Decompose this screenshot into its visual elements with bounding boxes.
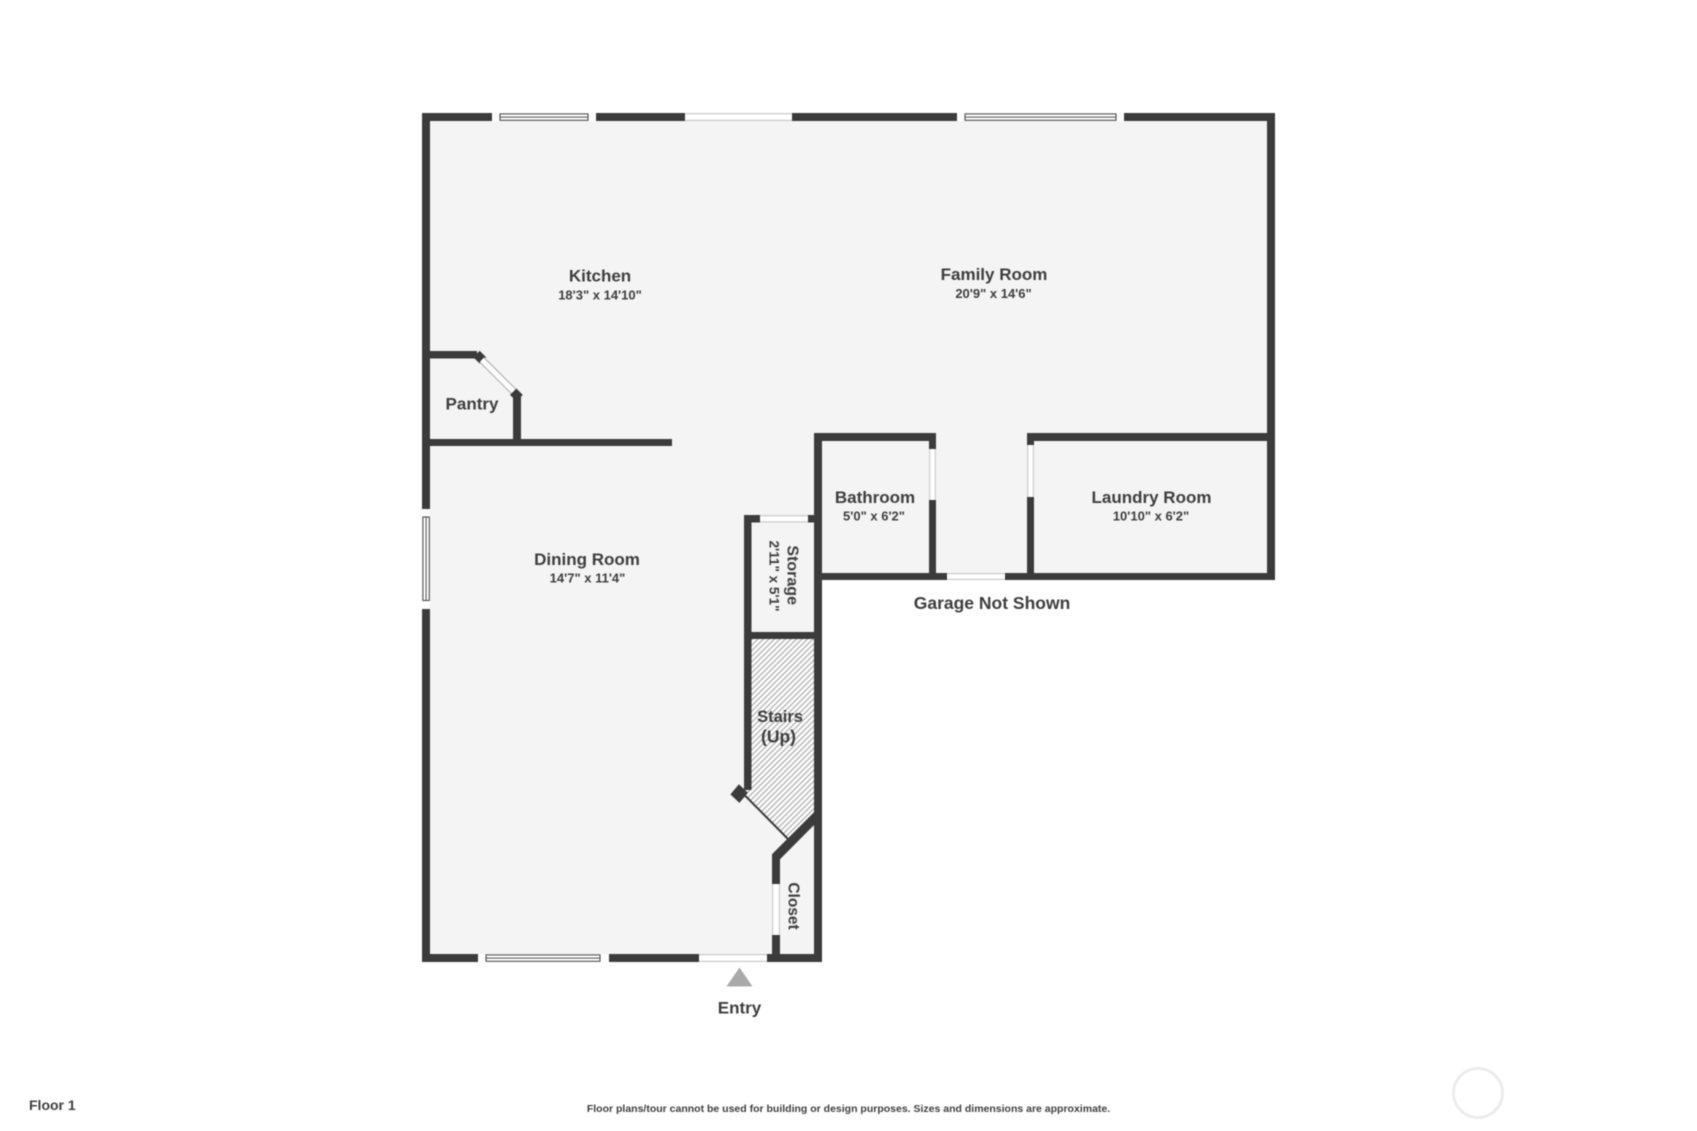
svg-text:18'3" x 14'10": 18'3" x 14'10" (558, 288, 642, 303)
svg-text:Closet: Closet (785, 882, 802, 929)
svg-text:Garage Not Shown: Garage Not Shown (914, 593, 1071, 613)
svg-text:Floor plans/tour cannot be use: Floor plans/tour cannot be used for buil… (587, 1103, 1110, 1115)
svg-text:Bathroom: Bathroom (835, 488, 915, 507)
svg-text:(Up): (Up) (761, 727, 796, 747)
svg-text:Kitchen: Kitchen (569, 267, 631, 286)
svg-text:Floor 1: Floor 1 (29, 1097, 76, 1113)
svg-text:Family Room: Family Room (941, 265, 1048, 284)
svg-text:20'9" x 14'6": 20'9" x 14'6" (955, 286, 1031, 301)
svg-text:Entry: Entry (718, 999, 762, 1018)
svg-text:Pantry: Pantry (446, 395, 499, 414)
svg-text:Dining Room: Dining Room (534, 550, 640, 569)
svg-text:5'0" x 6'2": 5'0" x 6'2" (843, 509, 905, 524)
svg-text:Storage: Storage (784, 545, 801, 605)
svg-text:Laundry Room: Laundry Room (1092, 488, 1212, 507)
svg-text:2'11" x 5'1": 2'11" x 5'1" (767, 540, 782, 611)
svg-text:Stairs: Stairs (757, 708, 803, 726)
svg-text:14'7" x 11'4": 14'7" x 11'4" (550, 571, 626, 586)
svg-text:10'10" x 6'2": 10'10" x 6'2" (1113, 509, 1189, 524)
